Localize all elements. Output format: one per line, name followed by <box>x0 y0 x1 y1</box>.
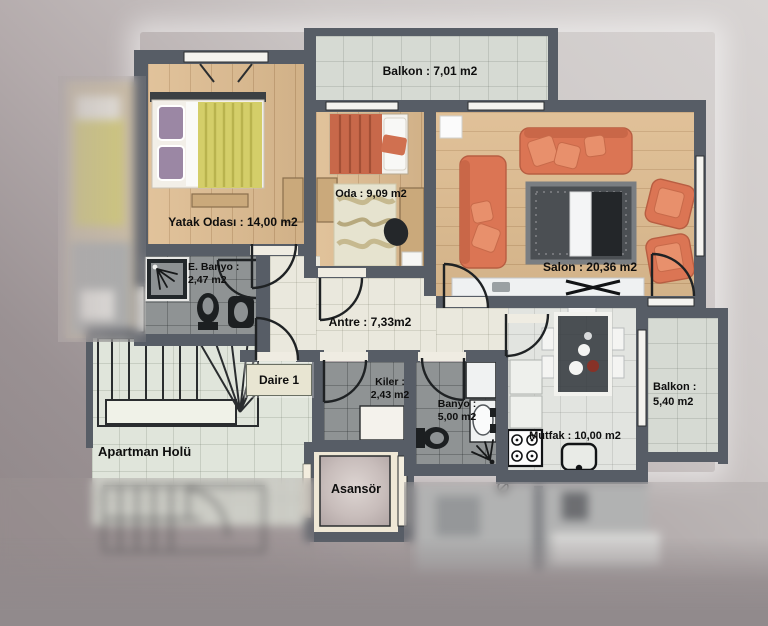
room-label-apartman-holu: Apartman Holü <box>98 445 268 458</box>
tv-cabinet <box>452 278 644 296</box>
kiler-line1: Kiler : <box>346 376 434 389</box>
sofa-long <box>520 128 632 174</box>
room-label-salon: Salon : 20,36 m2 <box>500 261 680 274</box>
floorplan-canvas: { "rooms": { "balkon_top": { "label": "B… <box>0 0 768 626</box>
banyo-line1: Banyo : <box>418 398 496 411</box>
banyo-line2: 5,00 m2 <box>418 411 496 424</box>
kiler-appliance <box>360 406 404 440</box>
room-label-balkon-right: Balkon : 5,40 m2 <box>653 380 717 410</box>
blur-left-neighbor <box>58 76 146 342</box>
apartment-number-plate: Daire 1 <box>246 364 312 396</box>
single-bed <box>330 114 408 174</box>
room-label-balkon-top: Balkon : 7,01 m2 <box>330 65 530 78</box>
bottom-fade <box>0 538 768 626</box>
room-label-oda: Oda : 9,09 m2 <box>318 188 424 201</box>
double-bed <box>150 92 266 188</box>
armchair-1 <box>643 177 696 230</box>
kitchen-counter-2 <box>510 396 542 428</box>
bedroom-bench <box>192 194 248 207</box>
e-banyo-line2: 2,47 m2 <box>188 274 266 287</box>
room-label-mutfak: Mutfak : 10,00 m2 <box>515 430 635 443</box>
room-label-yatak-odasi: Yatak Odası : 14,00 m2 <box>138 216 328 229</box>
dining-table <box>542 304 624 394</box>
oda-door <box>320 278 362 320</box>
ensuite-sink-bowl <box>234 302 248 322</box>
room-label-asansor: Asansör <box>317 483 395 496</box>
room-label-e-banyo: E. Banyo : 2,47 m2 <box>188 261 266 287</box>
banyo-toilet <box>414 427 449 449</box>
apartment-number-label: Daire 1 <box>259 374 299 387</box>
sofa-left <box>460 156 506 268</box>
room-label-banyo: Banyo : 5,00 m2 <box>418 398 496 424</box>
e-banyo-line1: E. Banyo : <box>188 261 266 274</box>
balkon-right-line2: 5,40 m2 <box>653 395 717 410</box>
ensuite-toilet <box>197 293 219 330</box>
salon-rug <box>528 184 634 262</box>
banyo-washer <box>466 362 496 398</box>
room-label-antre: Antre : 7,33m2 <box>290 316 450 329</box>
ensuite-shower <box>146 258 188 300</box>
balkon-right-line1: Balkon : <box>653 380 717 395</box>
oda-printer <box>402 252 422 266</box>
salon-switch-plate <box>440 116 462 138</box>
staircase-upper <box>98 338 258 426</box>
kitchen-counter-1 <box>510 360 542 394</box>
banyo-shower-spray-icon <box>472 440 494 464</box>
